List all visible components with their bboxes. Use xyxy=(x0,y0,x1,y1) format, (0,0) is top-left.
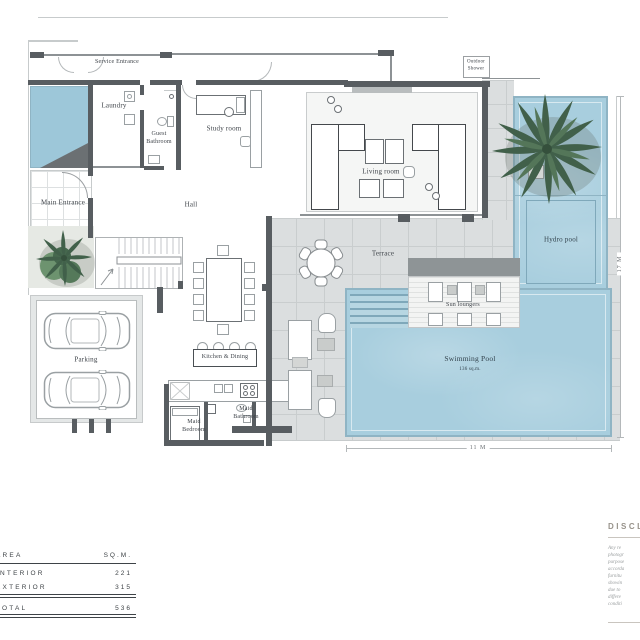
label-study-room: Study room xyxy=(207,124,242,133)
wall xyxy=(140,110,144,168)
wall xyxy=(150,80,168,85)
staircase xyxy=(95,237,183,289)
wall xyxy=(176,85,181,170)
pendant-light xyxy=(432,192,440,200)
disclaimer-block: DISCLAIMER Any re photogr purpose accord… xyxy=(608,522,640,632)
wall xyxy=(157,287,163,313)
disclaimer-line: purpose xyxy=(608,560,624,565)
glass-slider-line xyxy=(300,214,482,216)
table-row: INTERIOR 221 xyxy=(0,570,136,580)
dining-chair xyxy=(244,262,255,273)
door-swing-arc xyxy=(182,85,196,99)
label-outdoor-shower: Outdoor Shower xyxy=(467,60,485,73)
terrace-side-table xyxy=(317,375,333,387)
dining-chair xyxy=(193,310,204,321)
car-top-view xyxy=(43,311,131,351)
row-value: 315 xyxy=(115,584,132,591)
row-label: EXTERIOR xyxy=(0,584,47,591)
site-boundary-top xyxy=(38,17,448,18)
terrace-lounger xyxy=(288,320,312,360)
dining-chair xyxy=(244,278,255,289)
label-living-room: Living room xyxy=(362,167,399,176)
wall xyxy=(30,52,44,58)
bollard xyxy=(106,419,111,433)
burner xyxy=(250,385,255,390)
pendant-light xyxy=(334,105,342,113)
row-value: 221 xyxy=(115,570,132,577)
dining-table xyxy=(206,258,242,322)
label-kitchen-dining: Kitchen & Dining xyxy=(202,354,249,362)
label-maid-bedroom: Maid Bedroom xyxy=(182,419,206,435)
deck-side-table xyxy=(447,285,457,295)
laundry-sink xyxy=(124,114,135,125)
dimension-tick xyxy=(617,437,624,438)
sun-lounger xyxy=(457,313,472,326)
toilet-tank xyxy=(167,116,174,127)
dining-chair xyxy=(193,294,204,305)
wall xyxy=(28,80,140,85)
side-table xyxy=(383,179,404,198)
wall-line xyxy=(93,166,140,168)
area-schedule-table: AREA SQ.M. INTERIOR 221 EXTERIOR 315 TOT… xyxy=(0,548,136,628)
wall-line xyxy=(482,78,540,79)
coffee-table xyxy=(385,139,404,164)
wall xyxy=(160,52,172,58)
corridor-top-line xyxy=(172,53,390,55)
label-hydro-pool: Hydro pool xyxy=(544,235,578,244)
label-swimming-pool: Swimming Pool xyxy=(444,354,495,364)
counter-x-module xyxy=(170,382,190,400)
dimension-label-height: 17 M xyxy=(617,253,623,276)
row-label: TOTAL xyxy=(0,605,27,612)
sun-lounger xyxy=(486,313,501,326)
door-swing-arc xyxy=(252,62,272,82)
disclaimer-line: Any re xyxy=(608,546,621,551)
burner xyxy=(243,391,248,396)
table-rule xyxy=(0,563,136,564)
wall xyxy=(88,198,93,238)
disclaimer-line: photogr xyxy=(608,553,624,558)
table-header-row: AREA SQ.M. xyxy=(0,552,136,562)
disclaimer-line: differe xyxy=(608,595,621,600)
label-swimming-pool-area: 136 sq.m. xyxy=(459,367,480,374)
label-sun-loungers: Sun loungers xyxy=(446,302,480,310)
label-laundry: Laundry xyxy=(101,101,126,110)
row-value: 536 xyxy=(115,605,132,612)
door-post xyxy=(462,214,474,222)
living-room-right-wall xyxy=(482,81,488,218)
pendant-light xyxy=(327,96,335,104)
deck-shade-band xyxy=(408,258,520,276)
wall xyxy=(88,168,93,176)
deck-side-table xyxy=(475,285,485,295)
kitchen-terrace-wall xyxy=(266,216,272,446)
shower-head xyxy=(169,94,174,99)
door-swing-arc xyxy=(58,57,74,73)
sun-lounger xyxy=(428,282,443,302)
disclaimer-title: DISCLAIMER xyxy=(608,522,640,531)
dining-chair xyxy=(244,294,255,305)
table-rule xyxy=(0,597,136,598)
burner xyxy=(243,385,248,390)
wicker-table xyxy=(292,357,308,368)
living-room-top-wall xyxy=(344,81,490,87)
disclaimer-line: showin xyxy=(608,581,622,586)
tv-console xyxy=(352,87,412,93)
dining-chair xyxy=(193,278,204,289)
entry-gate-line xyxy=(28,40,78,42)
terrace-chair xyxy=(318,398,336,418)
terrace-side-table xyxy=(317,338,335,351)
coffee-table xyxy=(365,139,384,164)
wall xyxy=(232,426,292,433)
maid-bed-pillow xyxy=(172,408,198,416)
bollard xyxy=(72,419,77,433)
disclaimer-rule xyxy=(608,537,640,538)
pendant-light xyxy=(425,183,433,191)
study-stool xyxy=(224,107,234,117)
table-rule xyxy=(0,614,136,615)
label-guest-bathroom: Guest Bathroom xyxy=(146,131,172,147)
door-post xyxy=(398,214,410,222)
study-desk xyxy=(250,90,262,168)
disclaimer-line: accorda xyxy=(608,567,624,572)
dining-chair xyxy=(193,262,204,273)
burner xyxy=(250,391,255,396)
wall xyxy=(144,166,164,170)
wall xyxy=(88,85,93,168)
dimension-tick xyxy=(617,96,624,97)
toilet-bowl xyxy=(157,117,167,126)
kitchen-sink xyxy=(224,384,233,393)
dining-chair xyxy=(217,324,229,335)
label-maid-bathroom: Maid Bathroom xyxy=(233,406,259,422)
sofa-right xyxy=(438,124,466,210)
bollard xyxy=(89,419,94,433)
dining-chair xyxy=(244,310,255,321)
terrace-chair xyxy=(318,313,336,333)
pouf xyxy=(403,166,415,178)
dimension-tick xyxy=(611,445,612,452)
label-parking: Parking xyxy=(74,355,97,364)
disclaimer-line: conditi xyxy=(608,602,622,607)
table-rule xyxy=(0,594,136,595)
area-header-unit: SQ.M. xyxy=(104,552,132,559)
sun-lounger xyxy=(457,282,472,302)
area-header-label: AREA xyxy=(0,552,23,559)
corridor-end-line xyxy=(390,56,392,82)
label-main-entrance: Main Entrance xyxy=(41,198,85,207)
sofa-left xyxy=(311,124,339,210)
pool-steps xyxy=(350,294,410,328)
wall xyxy=(164,440,264,446)
disclaimer-line: furnitu xyxy=(608,574,622,579)
sun-lounger xyxy=(428,313,443,326)
terrace-lounger xyxy=(288,370,312,410)
door-post xyxy=(262,284,272,291)
washer-drum xyxy=(127,94,132,99)
side-table xyxy=(359,179,380,198)
daybed-pillow xyxy=(236,97,245,113)
label-hall: Hall xyxy=(185,200,198,209)
table-rule xyxy=(0,617,136,618)
wall xyxy=(140,85,144,95)
dimension-tick xyxy=(346,445,347,452)
row-label: INTERIOR xyxy=(0,570,45,577)
label-service-entrance: Service Entrance xyxy=(95,59,139,67)
sun-lounger xyxy=(486,282,501,302)
window-band xyxy=(44,54,160,56)
wall xyxy=(196,80,348,85)
hydro-pool-palm-tree xyxy=(486,88,608,210)
desk-chair xyxy=(240,136,251,147)
terrace-table-set xyxy=(296,238,346,288)
disclaimer-line: due to xyxy=(608,588,620,593)
table-row: EXTERIOR 315 xyxy=(0,584,136,594)
wall xyxy=(164,384,169,446)
disclaimer-rule xyxy=(608,622,640,623)
label-terrace: Terrace xyxy=(372,249,394,258)
dimension-label-width: 11 M xyxy=(467,445,490,451)
terrace-bottom-edge xyxy=(268,440,620,441)
car-top-view xyxy=(43,370,131,410)
floor-plan-canvas: Service Entrance Laundry Guest Bathroom … xyxy=(0,0,640,640)
dining-chair xyxy=(217,245,229,256)
staircase-drawing xyxy=(95,237,183,289)
bathroom-sink xyxy=(148,155,160,164)
kitchen-sink xyxy=(214,384,223,393)
